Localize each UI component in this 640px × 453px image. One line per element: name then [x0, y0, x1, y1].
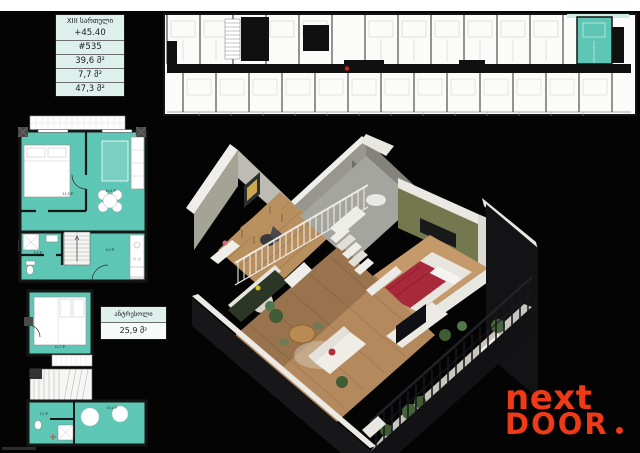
flyer-page: XIII სართული +45.40 #535 39,6 მ² 7,7 მ² …	[0, 0, 640, 453]
highlighted-unit	[577, 17, 612, 64]
area-total: 47,3 მ²	[56, 82, 124, 96]
mezzanine-area: 25,9 მ²	[101, 322, 166, 339]
mez-bed	[34, 297, 86, 345]
nextdoor-logo: next DOOR	[505, 385, 623, 437]
watermark	[2, 447, 36, 450]
unit-number: #535	[56, 40, 124, 54]
room-label: 15,4 მ²	[105, 189, 117, 193]
stairwell	[225, 19, 240, 59]
shower	[23, 234, 39, 250]
balcony-hatch	[30, 116, 125, 131]
mez-balcony-hatch	[52, 355, 92, 366]
logo-line2: DOOR	[505, 413, 609, 437]
corridor	[167, 64, 631, 73]
mezzanine-label-box: ანტრესოლი 25,9 მ²	[100, 306, 167, 340]
room-label: 9,0 მ²	[105, 248, 115, 252]
area-balcony: 7,7 მ²	[56, 68, 124, 82]
mez-stairs	[30, 369, 92, 401]
room-label: 3,9 მ²	[33, 251, 43, 255]
logo-dot	[616, 427, 623, 434]
room-label: 15,2 მ²	[106, 406, 118, 410]
unit-location-marker	[345, 66, 350, 71]
room-label: 10,7 მ²	[54, 345, 66, 349]
unit-info-box: XIII სართული +45.40 #535 39,6 მ² 7,7 მ² …	[55, 14, 125, 97]
bed	[24, 145, 70, 197]
stairs	[64, 232, 90, 265]
sink	[46, 235, 58, 242]
kitchen-counter	[130, 235, 144, 279]
sofa	[131, 137, 144, 189]
room-label: 11,3 მ²	[62, 192, 74, 196]
render-3d-apartment	[180, 130, 542, 453]
building-floor-plan-strip	[163, 13, 637, 117]
rug	[102, 141, 128, 181]
red-pillow	[329, 349, 336, 356]
mez-round-1	[81, 408, 99, 426]
area-living: 39,6 მ²	[56, 54, 124, 68]
mezzanine-title: ანტრესოლი	[101, 307, 166, 322]
column	[24, 317, 33, 326]
floor-label: XIII სართული	[56, 15, 124, 27]
elevation-label: +45.40	[56, 27, 124, 40]
room-label: 2,2 მ²	[39, 412, 49, 416]
plan-level1: 11,3 მ² 15,4 მ² 3,9 მ² 9,0 მ²	[18, 115, 148, 285]
